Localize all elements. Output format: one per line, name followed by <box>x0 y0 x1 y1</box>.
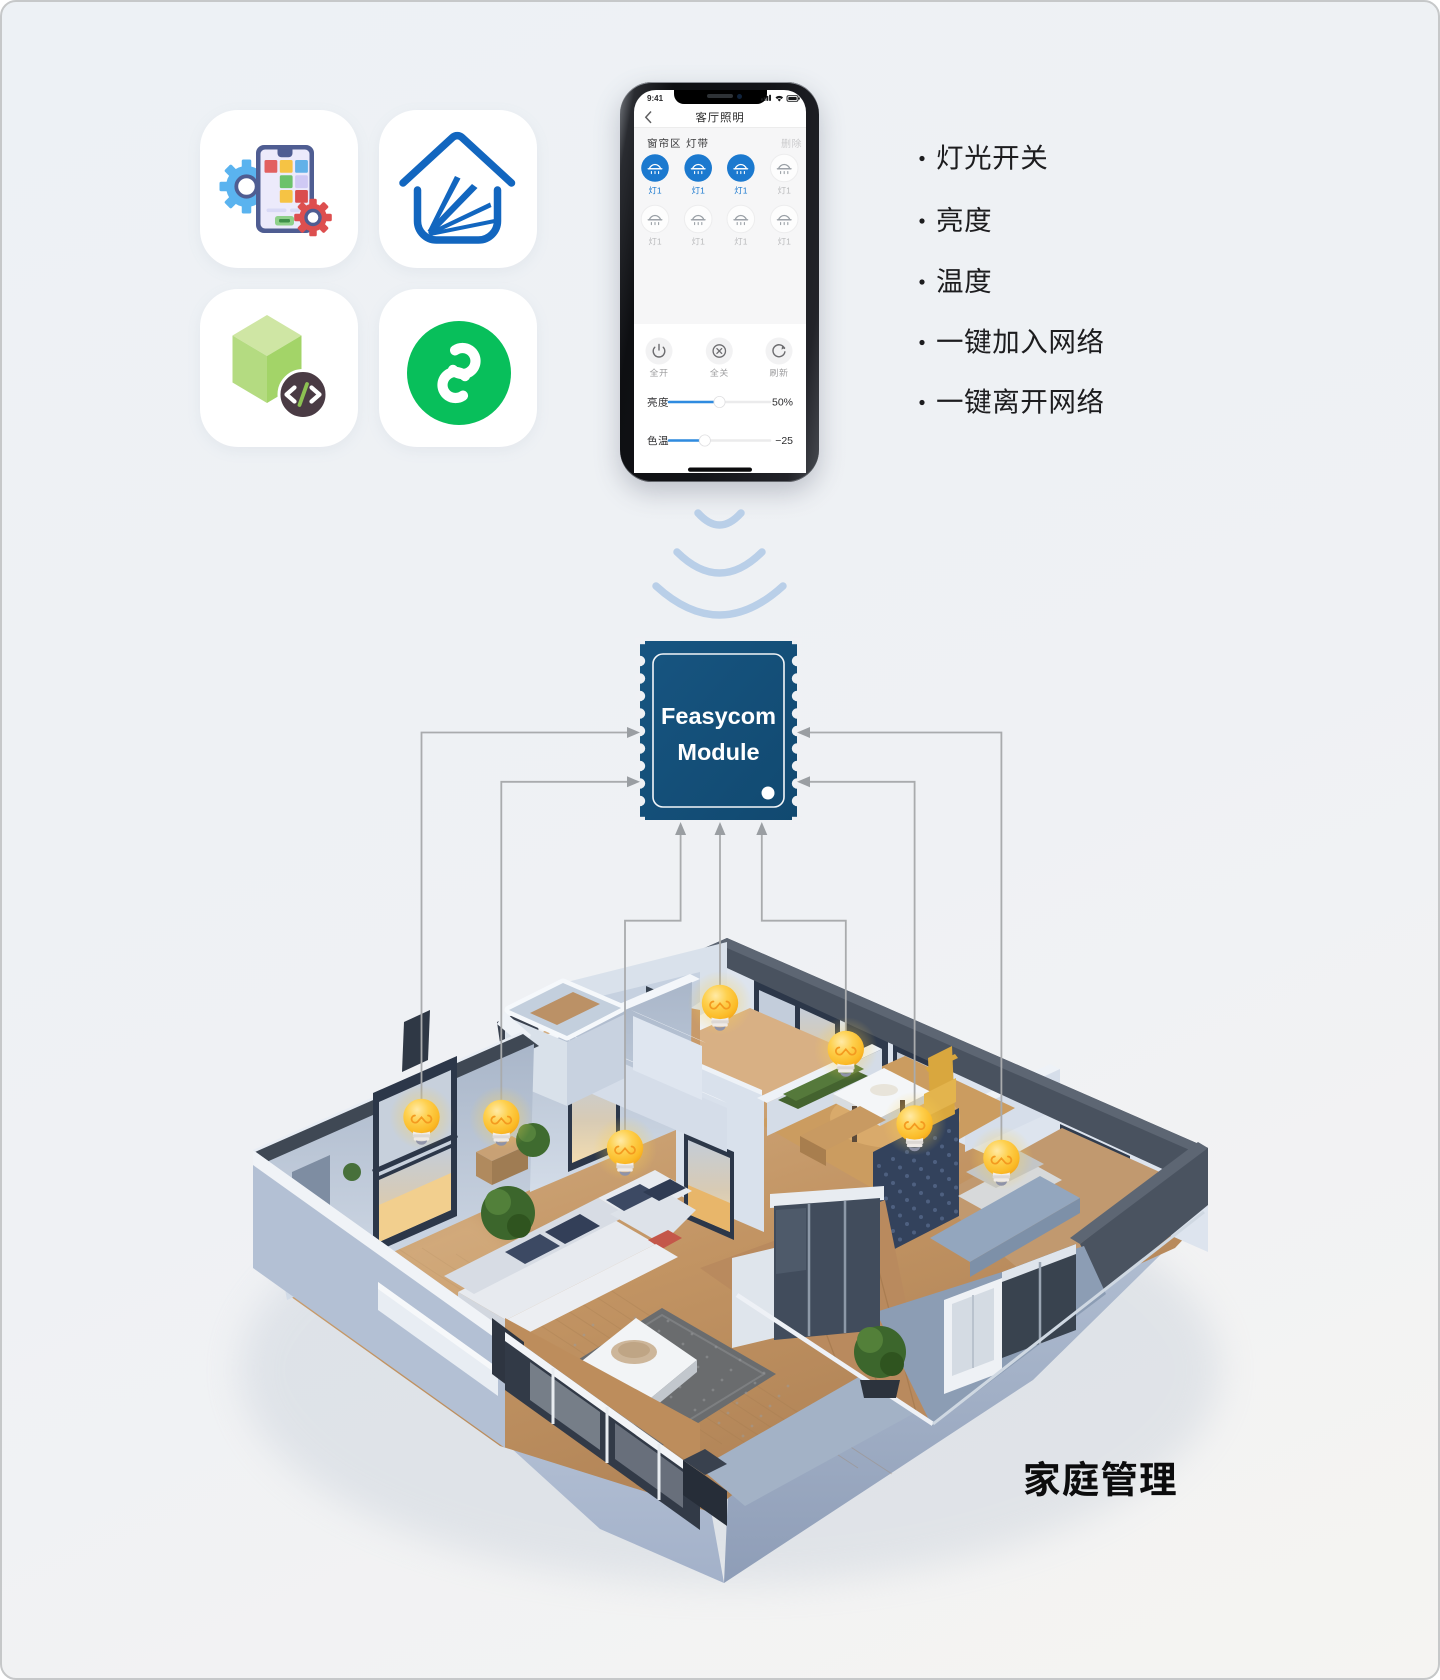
svg-text:9:41: 9:41 <box>647 94 664 103</box>
svg-text:1: 1 <box>743 237 748 247</box>
svg-text:1: 1 <box>657 186 662 196</box>
svg-text:1: 1 <box>700 237 705 247</box>
svg-text:Module: Module <box>677 739 759 765</box>
svg-text:1: 1 <box>786 237 791 247</box>
svg-text:1: 1 <box>786 186 791 196</box>
svg-text:−25: −25 <box>775 435 793 447</box>
svg-text:50%: 50% <box>772 397 793 409</box>
svg-text:1: 1 <box>743 186 748 196</box>
svg-text:1: 1 <box>657 237 662 247</box>
svg-text:1: 1 <box>700 186 705 196</box>
svg-text:Feasycom: Feasycom <box>661 703 776 729</box>
